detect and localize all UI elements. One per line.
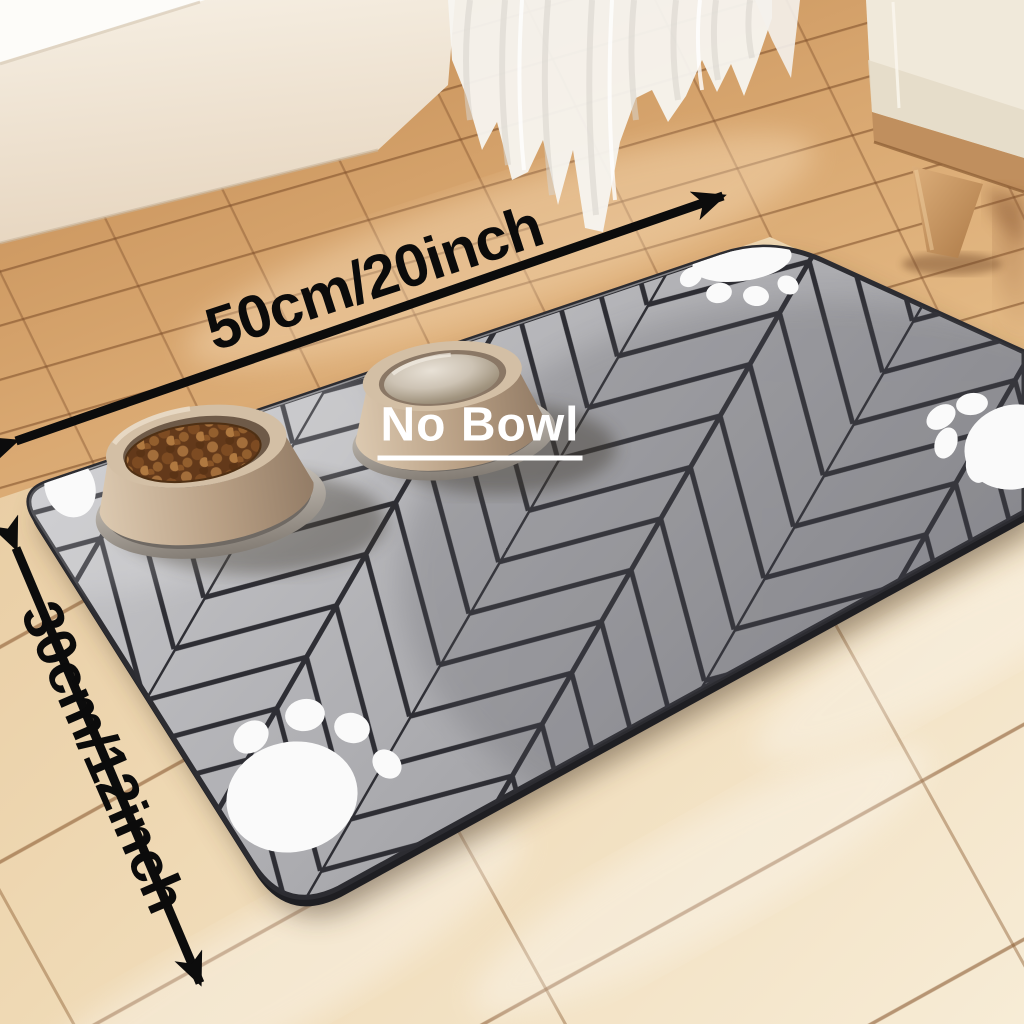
product-photo: 50cm/20inch 30cm/12inch No Bowl bbox=[0, 0, 1024, 1024]
no-bowl-label: No Bowl bbox=[378, 402, 583, 461]
